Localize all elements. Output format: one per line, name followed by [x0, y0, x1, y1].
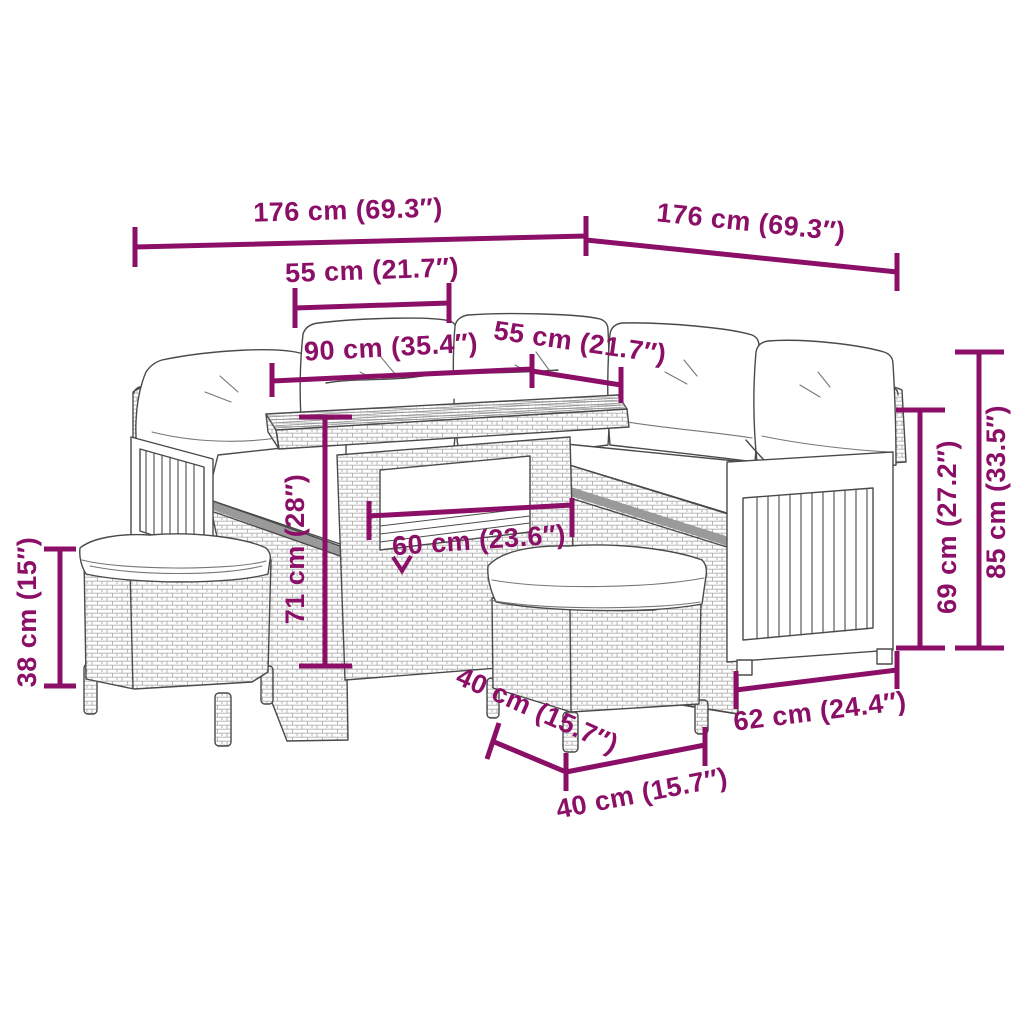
diagram-canvas: [0, 0, 1024, 1024]
sofa-armrest-right: [727, 440, 893, 675]
stool-left-drawing: [80, 534, 273, 746]
dim-line-sofa-width-right: [586, 240, 897, 291]
dim-label-back-height: 85 cm (33.5″): [982, 405, 1012, 579]
dim-label-stool-height: 38 cm (15″): [13, 537, 43, 688]
furniture-dimensions-diagram: 176 cm (69.3″) 176 cm (69.3″) 55 cm (21.…: [0, 0, 1024, 1024]
dim-label-seat-section-width: 55 cm (21.7″): [285, 253, 460, 289]
dim-line-stool-height: [44, 549, 76, 686]
stool-right-cushion: [488, 545, 707, 611]
dim-label-seat-height: 69 cm (27.2″): [933, 440, 963, 614]
dim-label-sofa-width-left: 176 cm (69.3″): [253, 194, 443, 229]
stool-left-cushion: [80, 534, 271, 582]
dim-label-table-height: 71 cm (28″): [281, 474, 311, 625]
